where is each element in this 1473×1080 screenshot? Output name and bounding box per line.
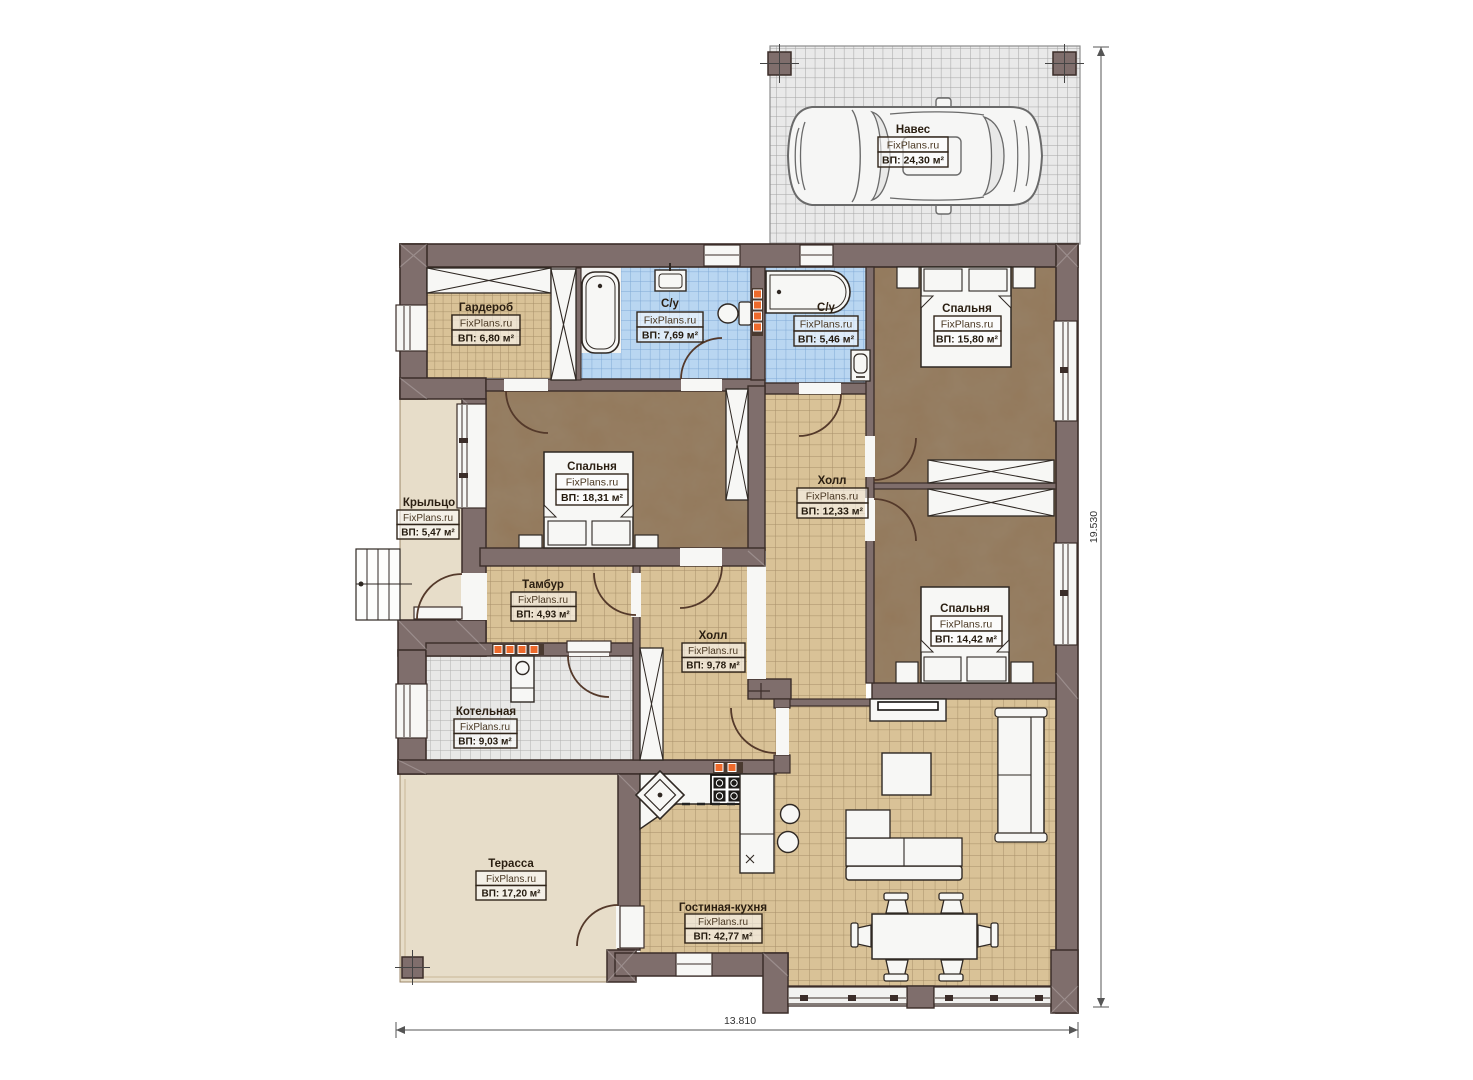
svg-text:FixPlans.ru: FixPlans.ru: [403, 513, 453, 524]
svg-text:ВП: 5,46 м²: ВП: 5,46 м²: [798, 334, 855, 346]
svg-text:FixPlans.ru: FixPlans.ru: [806, 491, 859, 503]
svg-text:ВП: 15,80 м²: ВП: 15,80 м²: [936, 334, 999, 346]
svg-text:FixPlans.ru: FixPlans.ru: [566, 477, 619, 489]
svg-text:FixPlans.ru: FixPlans.ru: [887, 140, 940, 152]
svg-text:ВП: 9,78 м²: ВП: 9,78 м²: [686, 661, 740, 672]
svg-text:FixPlans.ru: FixPlans.ru: [800, 319, 853, 331]
svg-text:FixPlans.ru: FixPlans.ru: [941, 319, 994, 331]
svg-text:ВП: 5,47 м²: ВП: 5,47 м²: [401, 528, 455, 539]
svg-text:ВП: 12,33 м²: ВП: 12,33 м²: [801, 506, 864, 518]
svg-text:FixPlans.ru: FixPlans.ru: [644, 315, 697, 327]
svg-text:Спальня: Спальня: [567, 461, 617, 473]
svg-text:FixPlans.ru: FixPlans.ru: [460, 318, 513, 330]
svg-text:Холл: Холл: [818, 475, 847, 487]
svg-text:13.810: 13.810: [724, 1015, 756, 1027]
svg-text:FixPlans.ru: FixPlans.ru: [518, 595, 568, 606]
svg-text:19.530: 19.530: [1088, 511, 1100, 543]
svg-text:Котельная: Котельная: [456, 706, 516, 718]
svg-text:Спальня: Спальня: [942, 303, 992, 315]
svg-text:Гардероб: Гардероб: [459, 302, 513, 314]
svg-text:FixPlans.ru: FixPlans.ru: [688, 646, 738, 657]
svg-text:ВП: 17,20 м²: ВП: 17,20 м²: [481, 889, 541, 900]
svg-text:FixPlans.ru: FixPlans.ru: [698, 917, 748, 928]
svg-text:Терасса: Терасса: [488, 858, 534, 870]
svg-text:Крыльцо: Крыльцо: [403, 497, 455, 509]
svg-text:Гостиная-кухня: Гостиная-кухня: [679, 902, 767, 914]
svg-text:ВП: 7,69 м²: ВП: 7,69 м²: [642, 330, 699, 342]
svg-text:Навес: Навес: [896, 124, 931, 136]
svg-text:Спальня: Спальня: [940, 603, 990, 615]
svg-text:ВП: 14,42 м²: ВП: 14,42 м²: [935, 634, 998, 646]
svg-text:FixPlans.ru: FixPlans.ru: [460, 722, 510, 733]
svg-text:С/у: С/у: [661, 298, 680, 310]
svg-text:ВП: 9,03 м²: ВП: 9,03 м²: [458, 737, 512, 748]
svg-text:ВП: 6,80 м²: ВП: 6,80 м²: [458, 333, 515, 345]
svg-text:Холл: Холл: [699, 630, 728, 642]
svg-text:FixPlans.ru: FixPlans.ru: [486, 874, 536, 885]
svg-text:ВП: 42,77 м²: ВП: 42,77 м²: [693, 932, 753, 943]
svg-text:FixPlans.ru: FixPlans.ru: [940, 619, 993, 631]
svg-text:ВП: 4,93 м²: ВП: 4,93 м²: [516, 610, 570, 621]
svg-text:Тамбур: Тамбур: [522, 579, 564, 591]
svg-text:ВП: 24,30 м²: ВП: 24,30 м²: [882, 155, 945, 167]
svg-text:ВП: 18,31 м²: ВП: 18,31 м²: [561, 492, 624, 504]
svg-text:С/у: С/у: [817, 302, 836, 314]
